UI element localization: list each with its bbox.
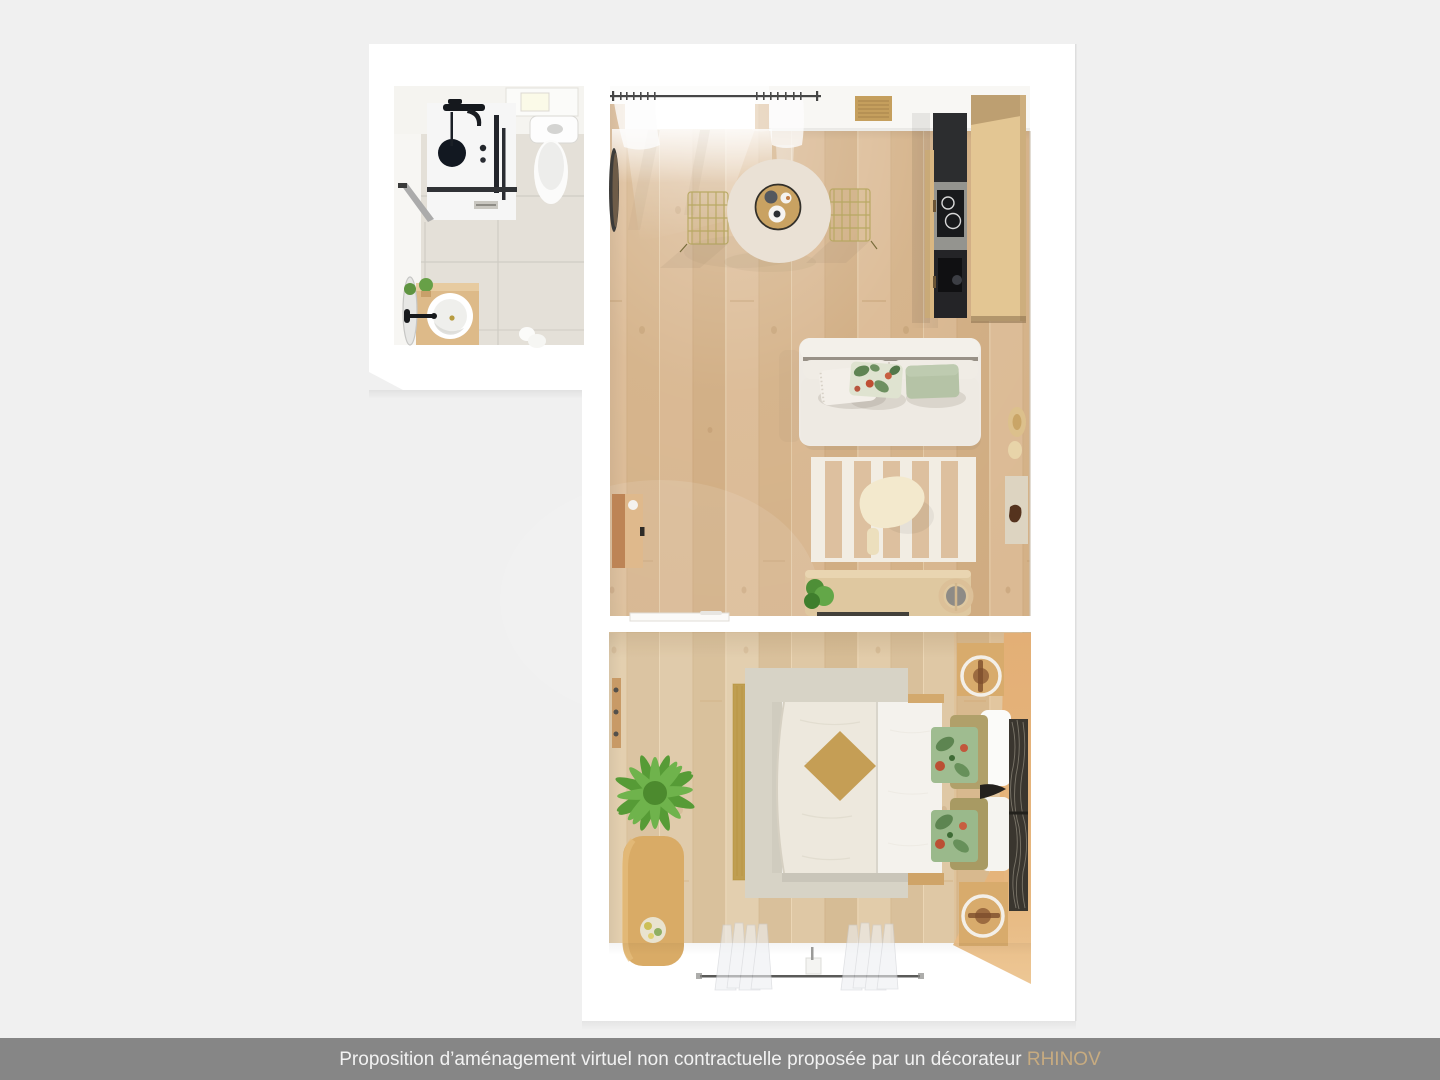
- svg-text:Proposition d’aménagement virt: Proposition d’aménagement virtuel non co…: [339, 1049, 1101, 1070]
